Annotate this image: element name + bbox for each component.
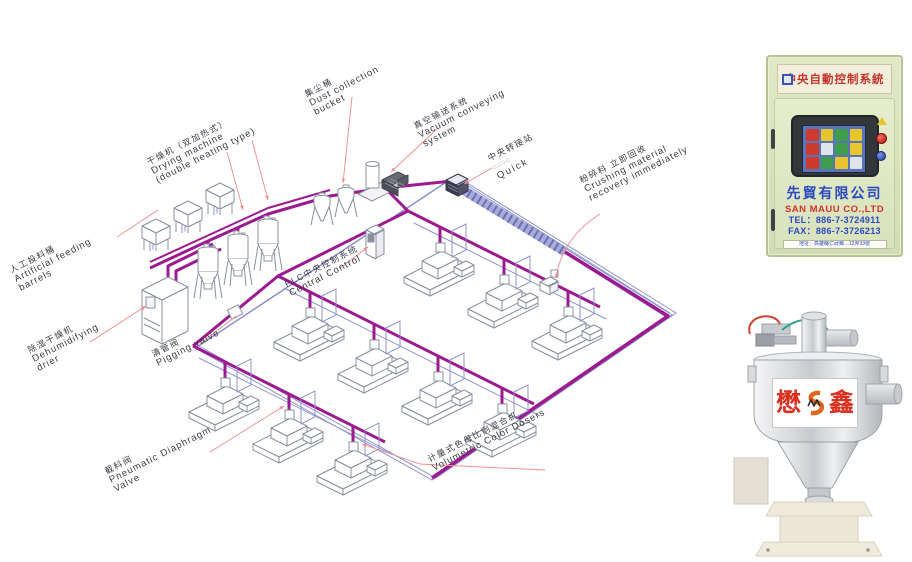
touch-screen-bezel xyxy=(791,115,879,177)
hopper-loader-photo: 懋 鑫 xyxy=(716,302,908,560)
control-cabinet-photo: 中央自動控制系統 先貿有限公司 SAN MAUU CO.,LTD TEL：886… xyxy=(766,55,903,257)
hopper-loader-drawing xyxy=(716,302,908,560)
clamp-right xyxy=(880,366,888,382)
brochure-page: 人工投料桶 Artificial feeding barrels 干燥机（双加热… xyxy=(0,0,912,562)
company-name-en: SAN MAUU CO.,LTD xyxy=(775,204,894,215)
cabinet-text-block: 先貿有限公司 SAN MAUU CO.,LTD TEL：886-7-372491… xyxy=(775,183,894,249)
vacuum-pump xyxy=(358,162,408,202)
brand-plate: 懋 鑫 xyxy=(772,378,858,428)
cone-outlet xyxy=(778,442,858,504)
transfer-station-unit xyxy=(446,174,468,196)
indicator-red-icon xyxy=(876,133,887,144)
plc-panel-unit xyxy=(366,225,384,259)
clamp-left xyxy=(748,366,756,382)
cabinet-sign: 中央自動控制系統 xyxy=(777,64,892,94)
cabinet-logo-icon xyxy=(782,74,793,85)
company-tel: TEL：886-7-3724911 xyxy=(775,215,894,226)
hatched-duct xyxy=(458,187,565,252)
brand-logo-icon xyxy=(804,389,826,417)
dust-collectors xyxy=(311,185,357,225)
indicator-yellow-icon xyxy=(877,117,887,125)
brand-char-left: 懋 xyxy=(776,391,801,416)
company-fax: FAX：886-7-3726213 xyxy=(775,226,894,237)
cabinet-door: 先貿有限公司 SAN MAUU CO.,LTD TEL：886-7-372491… xyxy=(774,98,895,249)
indicator-blue-icon xyxy=(876,151,886,161)
touch-screen xyxy=(802,125,866,173)
brand-char-right: 鑫 xyxy=(829,391,854,416)
inlet-pipe xyxy=(802,312,858,356)
company-address: 地址：高雄縣仁武鄉…12弄33號 xyxy=(783,240,887,249)
door-handle-top xyxy=(771,129,775,149)
cabinet-sign-text: 中央自動控制系統 xyxy=(785,71,885,87)
grinder-unit xyxy=(540,270,558,295)
door-handle-bottom xyxy=(771,209,775,231)
company-name-zh: 先貿有限公司 xyxy=(775,183,894,203)
side-port xyxy=(866,384,898,404)
feeding-barrels xyxy=(142,183,234,251)
